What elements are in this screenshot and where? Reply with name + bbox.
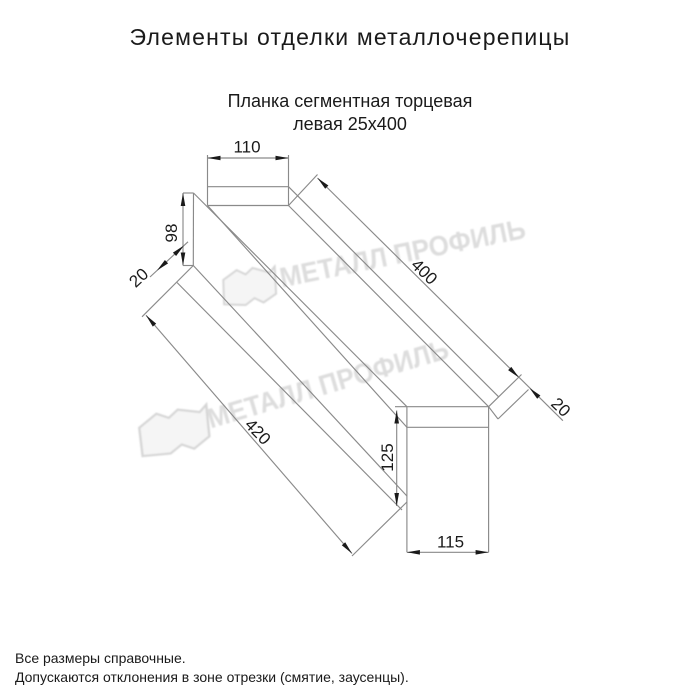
svg-text:110: 110 [233,138,260,157]
svg-text:20: 20 [547,394,574,421]
svg-text:115: 115 [437,533,464,552]
svg-text:МЕТАЛЛ ПРОФИЛЬ: МЕТАЛЛ ПРОФИЛЬ [204,333,453,434]
svg-text:125: 125 [378,443,397,471]
svg-text:МЕТАЛЛ ПРОФИЛЬ: МЕТАЛЛ ПРОФИЛЬ [277,213,528,293]
svg-text:98: 98 [162,224,181,243]
svg-text:20: 20 [125,264,152,291]
